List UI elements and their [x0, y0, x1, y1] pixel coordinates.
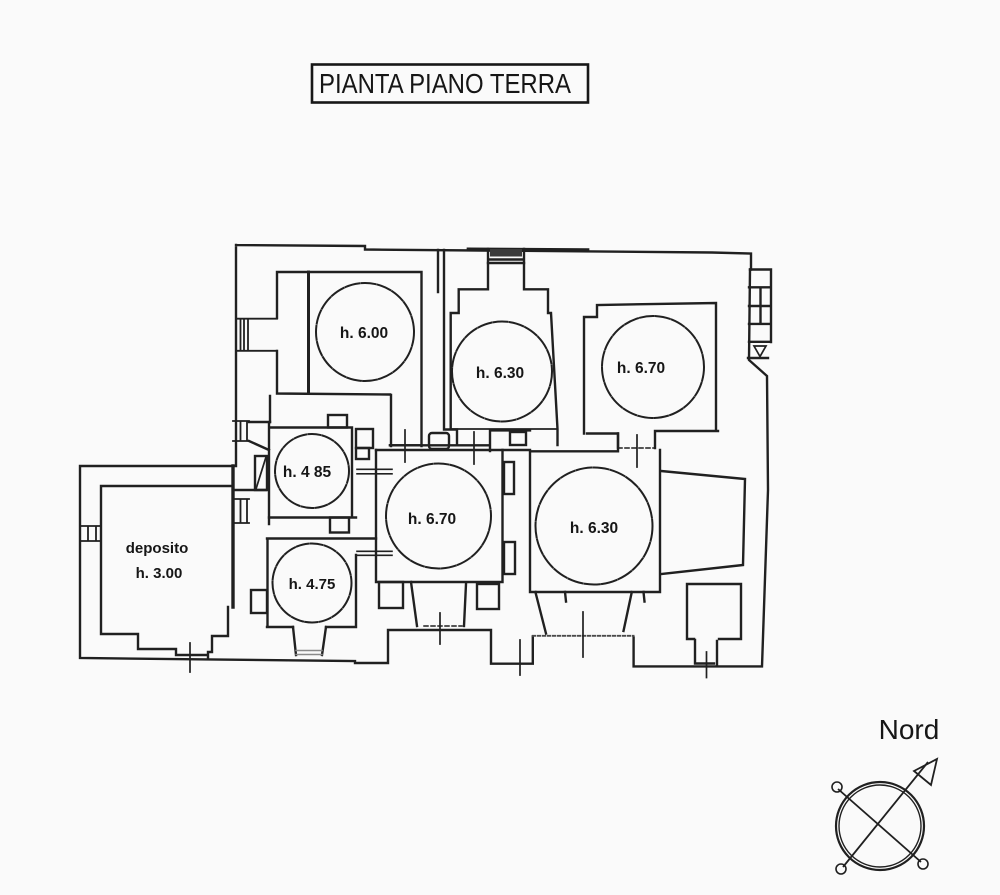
svg-text:h. 6.70: h. 6.70: [408, 511, 456, 528]
svg-text:h. 6.70: h. 6.70: [617, 360, 665, 377]
svg-text:deposito: deposito: [126, 540, 189, 557]
svg-text:h. 6.30: h. 6.30: [476, 365, 524, 382]
svg-text:h. 3.00: h. 3.00: [136, 565, 183, 582]
svg-text:h. 4 85: h. 4 85: [283, 464, 332, 481]
svg-text:Nord: Nord: [879, 714, 940, 745]
svg-text:PIANTA PIANO TERRA: PIANTA PIANO TERRA: [319, 68, 571, 99]
svg-text:h. 6.30: h. 6.30: [570, 520, 618, 537]
svg-text:h. 6.00: h. 6.00: [340, 325, 388, 342]
svg-text:h. 4.75: h. 4.75: [289, 576, 336, 593]
